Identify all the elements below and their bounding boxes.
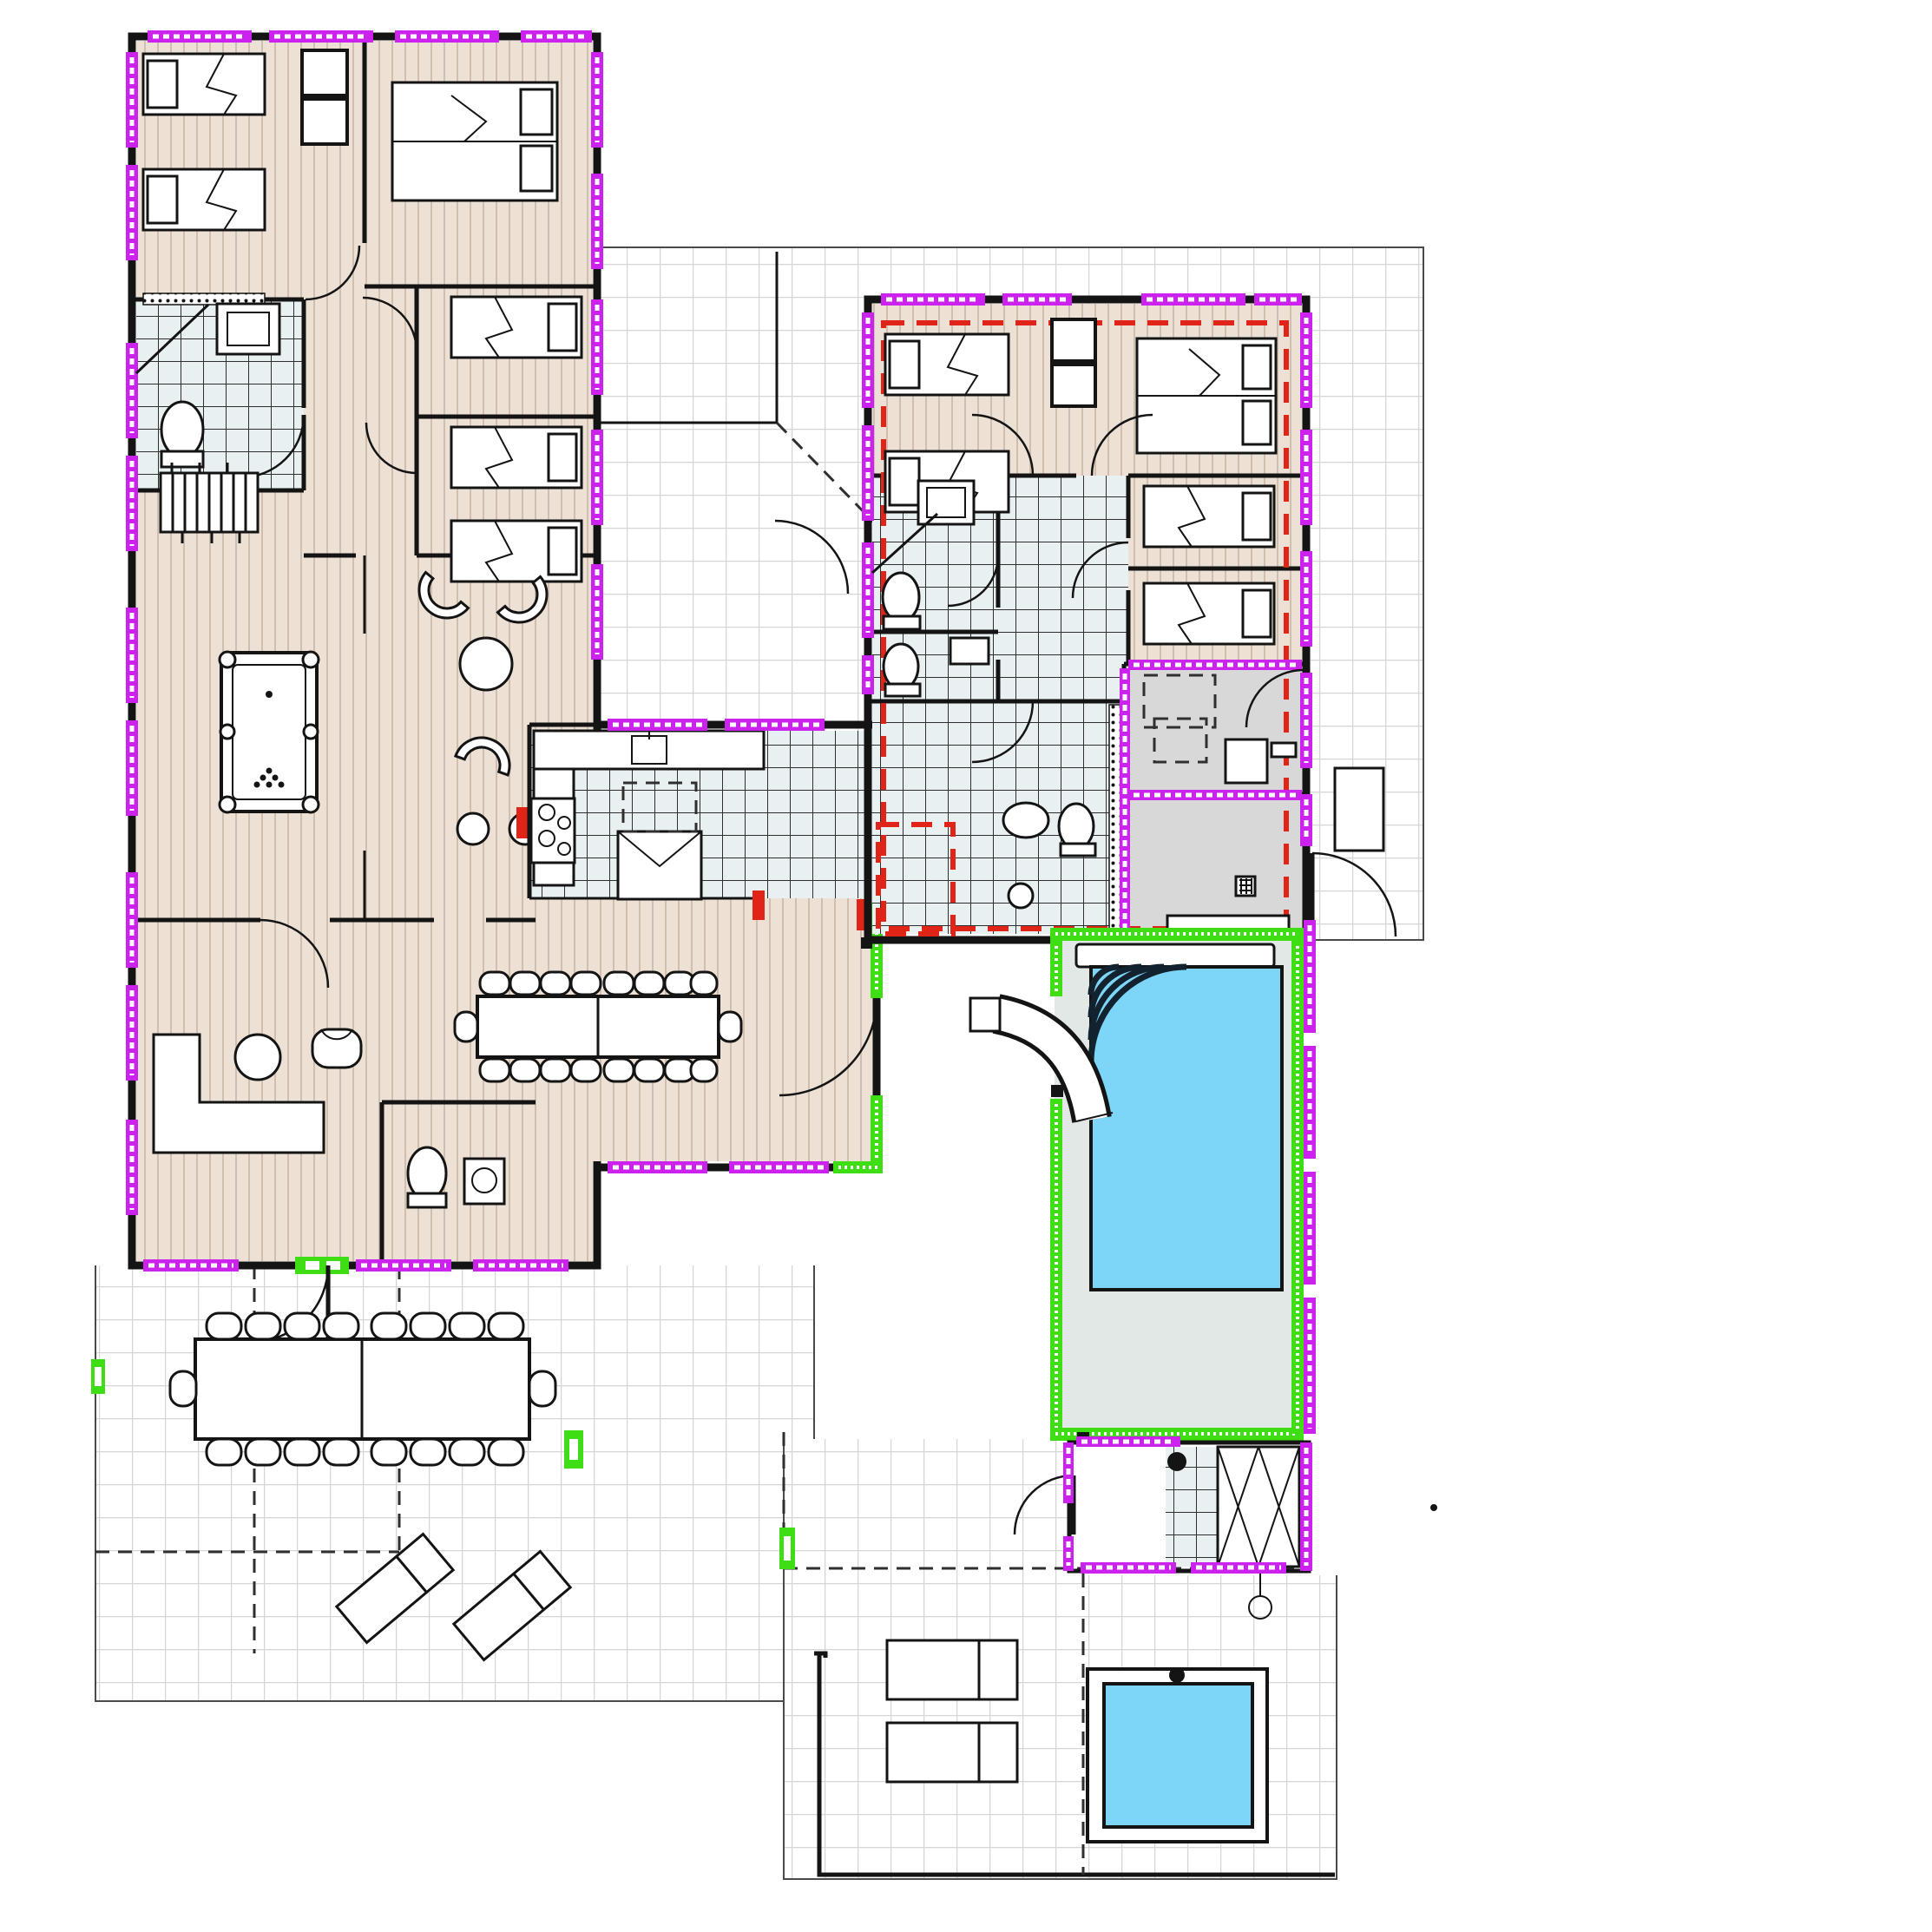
window-strip bbox=[126, 872, 138, 968]
new-wall-strip bbox=[833, 1161, 883, 1173]
window-strip bbox=[126, 720, 138, 816]
side-table bbox=[460, 638, 512, 690]
single-bed bbox=[451, 521, 582, 582]
bedroom-3 bbox=[451, 297, 582, 358]
single-bed bbox=[451, 297, 582, 358]
window-strip bbox=[1300, 673, 1312, 768]
interior-purple-wall bbox=[1128, 790, 1302, 800]
bedroom-2 bbox=[392, 82, 557, 200]
window-strip bbox=[862, 425, 874, 521]
window-strip bbox=[126, 456, 138, 551]
window-strip bbox=[1300, 794, 1312, 846]
dining-table-set bbox=[455, 972, 741, 1081]
pool-area bbox=[970, 920, 1316, 1444]
pool-bench bbox=[1076, 944, 1274, 967]
new-wall-marker bbox=[91, 1359, 105, 1394]
single-bed bbox=[143, 169, 265, 230]
billiard-table bbox=[220, 652, 319, 812]
window-strip bbox=[725, 719, 825, 731]
single-bed bbox=[143, 54, 265, 115]
single-bed bbox=[1144, 583, 1274, 644]
window-strip bbox=[881, 293, 985, 306]
double-bed bbox=[1137, 338, 1276, 453]
stool bbox=[457, 813, 489, 844]
new-door-marker bbox=[295, 1257, 349, 1274]
single-bed bbox=[1144, 486, 1274, 547]
toilet bbox=[883, 573, 920, 629]
window-strip bbox=[862, 312, 874, 408]
window-strip bbox=[126, 608, 138, 703]
sun-lounger bbox=[887, 1640, 1017, 1699]
toilet bbox=[161, 402, 203, 467]
table-tennis-table bbox=[161, 463, 258, 543]
wall-console bbox=[312, 1029, 361, 1068]
window-strip bbox=[126, 1120, 138, 1215]
bedroom-8 bbox=[1144, 583, 1274, 644]
single-bed bbox=[885, 334, 1009, 395]
cooktop bbox=[531, 798, 575, 863]
double-bed bbox=[392, 82, 557, 200]
sun-lounger bbox=[887, 1723, 1017, 1782]
window-strip bbox=[1300, 551, 1312, 647]
floor-plan-canvas bbox=[0, 0, 1932, 1932]
window-strip bbox=[591, 174, 603, 269]
window-strip bbox=[1002, 293, 1072, 306]
plunge-pool-water bbox=[1104, 1684, 1252, 1827]
plunge-pool bbox=[1088, 1667, 1267, 1842]
window-strip bbox=[126, 985, 138, 1081]
new-wall-marker bbox=[564, 1430, 583, 1469]
window-strip bbox=[1304, 1298, 1316, 1434]
shower-drain bbox=[1009, 884, 1033, 908]
terrace-table bbox=[1335, 768, 1383, 851]
window-strip bbox=[521, 30, 592, 43]
sauna-stove bbox=[1167, 1452, 1186, 1471]
window-strip bbox=[1300, 312, 1312, 408]
coffee-table bbox=[235, 1035, 280, 1080]
sauna-benches bbox=[1218, 1447, 1299, 1567]
window-strip bbox=[148, 30, 252, 43]
window-strip bbox=[356, 1259, 451, 1272]
window-strip bbox=[1304, 1046, 1316, 1159]
floor-drain bbox=[1236, 877, 1255, 896]
main-pool-water bbox=[1091, 967, 1282, 1290]
bedroom-7 bbox=[1144, 486, 1274, 547]
left-wing bbox=[126, 30, 603, 1342]
glass-block-wall bbox=[1109, 705, 1121, 934]
toilet bbox=[408, 1147, 446, 1207]
window-strip bbox=[1300, 430, 1312, 525]
bedroom-6 bbox=[1137, 338, 1276, 453]
new-wall-strip bbox=[871, 1095, 883, 1167]
right-corridor-floor bbox=[998, 476, 1128, 701]
wardrobe bbox=[302, 50, 347, 144]
window-strip bbox=[143, 1259, 239, 1272]
floor-plan-drawing bbox=[0, 0, 1932, 1932]
window-strip bbox=[608, 1161, 707, 1173]
sink bbox=[217, 304, 279, 354]
window-strip bbox=[862, 542, 874, 638]
junction-box bbox=[1051, 1085, 1063, 1097]
toilet bbox=[1059, 804, 1095, 856]
single-bed bbox=[451, 427, 582, 488]
window-strip bbox=[473, 1259, 568, 1272]
window-strip bbox=[862, 655, 874, 694]
slide-ladder bbox=[970, 998, 1000, 1031]
sink bbox=[918, 481, 974, 524]
window-strip bbox=[126, 343, 138, 438]
window-strip bbox=[729, 1161, 829, 1173]
new-wall-marker bbox=[779, 1528, 795, 1569]
window-strip bbox=[591, 430, 603, 525]
dot-mark bbox=[1430, 1504, 1437, 1511]
window-strip bbox=[126, 165, 138, 260]
window-strip bbox=[395, 30, 499, 43]
window-strip bbox=[1141, 293, 1245, 306]
toilet bbox=[884, 644, 920, 696]
pool-fitting bbox=[1169, 1667, 1185, 1683]
window-strip bbox=[126, 52, 138, 148]
window-strip bbox=[591, 52, 603, 148]
sink bbox=[1003, 803, 1048, 838]
window-strip bbox=[591, 299, 603, 395]
window-strip bbox=[608, 719, 707, 731]
window-strip bbox=[269, 30, 373, 43]
red-id-marker bbox=[752, 890, 765, 920]
shelf bbox=[1272, 743, 1296, 757]
window-strip bbox=[1304, 1172, 1316, 1285]
sink bbox=[950, 638, 989, 664]
window-strip bbox=[1254, 293, 1302, 306]
sink bbox=[464, 1159, 504, 1204]
window-strip bbox=[1304, 920, 1316, 1033]
interior-purple-wall bbox=[1128, 660, 1302, 670]
interior-purple-wall bbox=[1120, 668, 1130, 934]
window-strip bbox=[591, 564, 603, 660]
washer bbox=[1226, 739, 1267, 783]
wardrobe bbox=[1052, 319, 1095, 406]
